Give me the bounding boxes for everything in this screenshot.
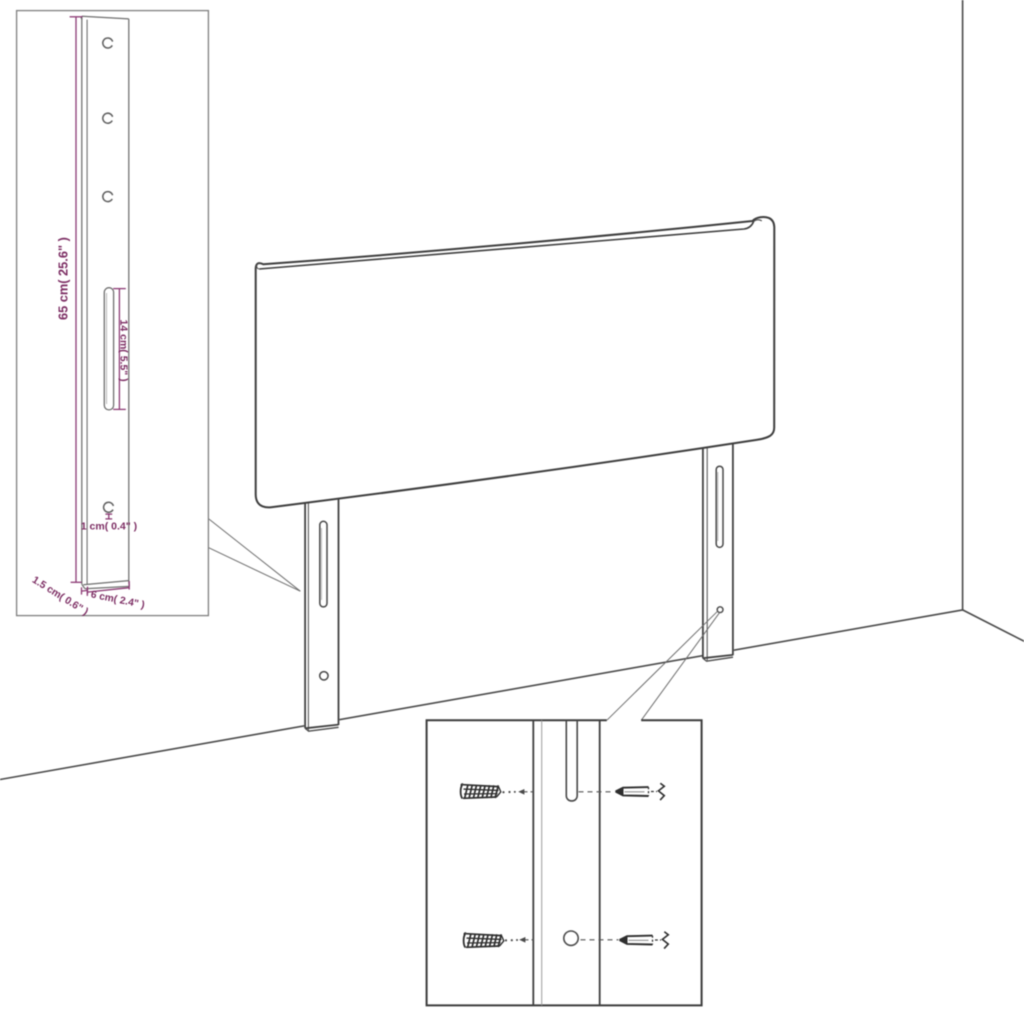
svg-text:14 cm( 5.5" ): 14 cm( 5.5" ) — [117, 320, 129, 382]
svg-text:65 cm( 25.6" ): 65 cm( 25.6" ) — [55, 237, 70, 320]
svg-text:1 cm( 0.4" ): 1 cm( 0.4" ) — [81, 521, 137, 533]
